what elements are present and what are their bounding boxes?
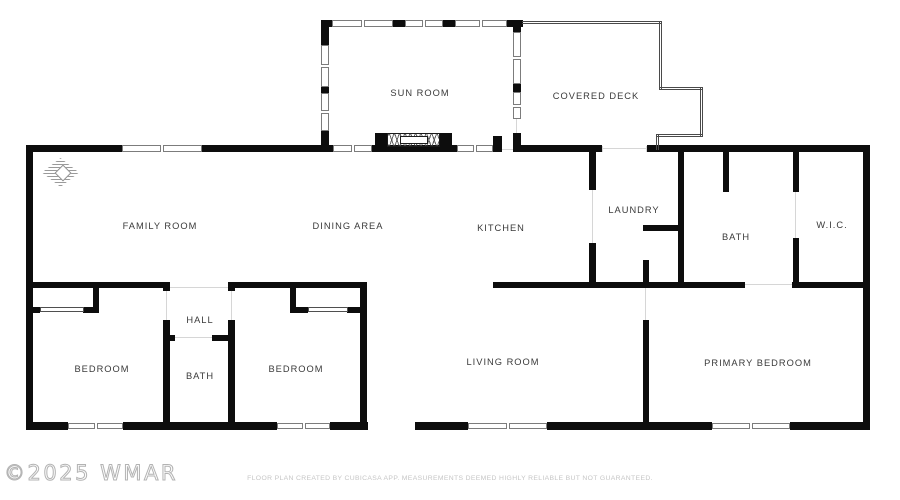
- stair-landing: [400, 136, 428, 144]
- door-opening: [592, 190, 593, 243]
- wall-segment: [26, 145, 122, 152]
- wall-segment: [547, 422, 712, 430]
- window-mullion: [506, 423, 510, 429]
- window: [455, 20, 507, 27]
- wall-segment: [513, 84, 521, 92]
- door-opening: [602, 146, 603, 152]
- wall-segment: [792, 282, 870, 288]
- deck-railing: [700, 87, 703, 137]
- wall-segment: [723, 152, 729, 192]
- stair-post: [440, 133, 452, 152]
- window-mullion: [321, 110, 329, 114]
- wall-segment: [493, 282, 745, 288]
- window-mullion: [473, 145, 477, 152]
- window-mullion: [321, 64, 329, 68]
- wall-segment: [443, 20, 455, 27]
- window: [332, 20, 393, 27]
- window: [457, 145, 493, 152]
- wall-segment: [228, 282, 235, 291]
- deck-railing: [656, 134, 659, 150]
- wall-segment: [321, 20, 329, 45]
- window: [321, 45, 329, 87]
- window-mullion: [361, 20, 365, 27]
- window: [68, 423, 123, 429]
- watermark: ©2025 WMAR: [4, 461, 178, 485]
- wall-segment: [33, 307, 40, 313]
- wall-segment: [321, 131, 329, 152]
- window-mullion: [94, 423, 98, 429]
- room-label-primary-bedroom: PRIMARY BEDROOM: [704, 358, 812, 368]
- window-mullion: [749, 423, 753, 429]
- deck-railing: [656, 134, 703, 137]
- window-mullion: [302, 423, 306, 429]
- compass-inner-diamond: [55, 164, 72, 181]
- wall-segment: [360, 282, 367, 430]
- closet-door: [40, 307, 84, 312]
- wall-segment: [643, 260, 649, 288]
- deck-railing: [522, 21, 662, 24]
- door-opening: [645, 288, 646, 320]
- wall-segment: [513, 20, 521, 32]
- door-opening: [745, 284, 792, 285]
- door-opening: [646, 146, 647, 152]
- room-label-bath-2: BATH: [186, 371, 214, 381]
- window: [468, 423, 547, 429]
- door-opening: [602, 148, 647, 149]
- room-label-laundry: LAUNDRY: [608, 205, 659, 215]
- compass-rose: [42, 158, 79, 187]
- wall-segment: [393, 20, 405, 27]
- wall-segment: [83, 307, 99, 313]
- window: [122, 145, 202, 152]
- window-mullion: [160, 145, 164, 152]
- wall-segment: [415, 422, 468, 430]
- wall-segment: [123, 422, 277, 430]
- wall-segment: [793, 238, 799, 288]
- room-label-kitchen: KITCHEN: [477, 223, 525, 233]
- room-label-dining-area: DINING AREA: [313, 221, 384, 231]
- wall-segment: [589, 243, 596, 288]
- room-label-wic: W.I.C.: [816, 220, 847, 230]
- door-opening: [231, 291, 232, 320]
- room-label-hall: HALL: [186, 315, 213, 325]
- window: [405, 20, 443, 27]
- door-opening: [795, 192, 796, 238]
- wall-segment: [228, 282, 367, 288]
- wall-segment: [493, 136, 502, 152]
- footer-disclaimer: FLOOR PLAN CREATED BY CUBICASA APP. MEAS…: [247, 475, 653, 482]
- floorplan-canvas: SUN ROOMCOVERED DECKFAMILY ROOMDINING AR…: [0, 0, 900, 500]
- window-mullion: [479, 20, 483, 27]
- window-mullion: [351, 145, 355, 152]
- wall-segment: [26, 422, 68, 430]
- wall-segment: [202, 145, 333, 152]
- wall-segment: [290, 307, 308, 313]
- window: [333, 145, 372, 152]
- room-label-sun-room: SUN ROOM: [390, 88, 449, 98]
- wall-segment: [163, 282, 170, 291]
- window: [321, 93, 329, 131]
- room-label-bedroom-1: BEDROOM: [74, 364, 129, 374]
- door-opening: [516, 119, 517, 133]
- room-label-covered-deck: COVERED DECK: [553, 91, 639, 101]
- window: [513, 32, 521, 84]
- room-label-bedroom-2: BEDROOM: [268, 364, 323, 374]
- stair-post: [375, 133, 387, 152]
- wall-segment: [643, 320, 649, 430]
- wall-segment: [163, 335, 175, 341]
- door-opening: [175, 337, 212, 338]
- deck-railing: [659, 87, 703, 90]
- room-label-bath: BATH: [722, 232, 750, 242]
- window: [712, 423, 790, 429]
- wall-segment: [513, 133, 521, 152]
- closet-door: [308, 307, 348, 312]
- wall-segment: [521, 145, 602, 152]
- window-mullion: [513, 104, 521, 108]
- wall-segment: [647, 145, 870, 152]
- deck-railing: [659, 21, 662, 90]
- wall-segment: [790, 422, 870, 430]
- window: [513, 92, 521, 119]
- wall-segment: [793, 152, 799, 192]
- wall-segment: [589, 152, 596, 190]
- room-label-family-room: FAMILY ROOM: [123, 221, 198, 231]
- door-opening: [502, 149, 513, 150]
- window: [277, 423, 330, 429]
- wall-segment: [643, 225, 684, 231]
- room-label-living-room: LIVING ROOM: [467, 357, 540, 367]
- window-mullion: [422, 20, 426, 27]
- wall-segment: [212, 335, 235, 341]
- wall-segment: [678, 152, 684, 288]
- door-opening: [170, 287, 228, 288]
- window-mullion: [513, 56, 521, 60]
- door-opening: [166, 291, 167, 320]
